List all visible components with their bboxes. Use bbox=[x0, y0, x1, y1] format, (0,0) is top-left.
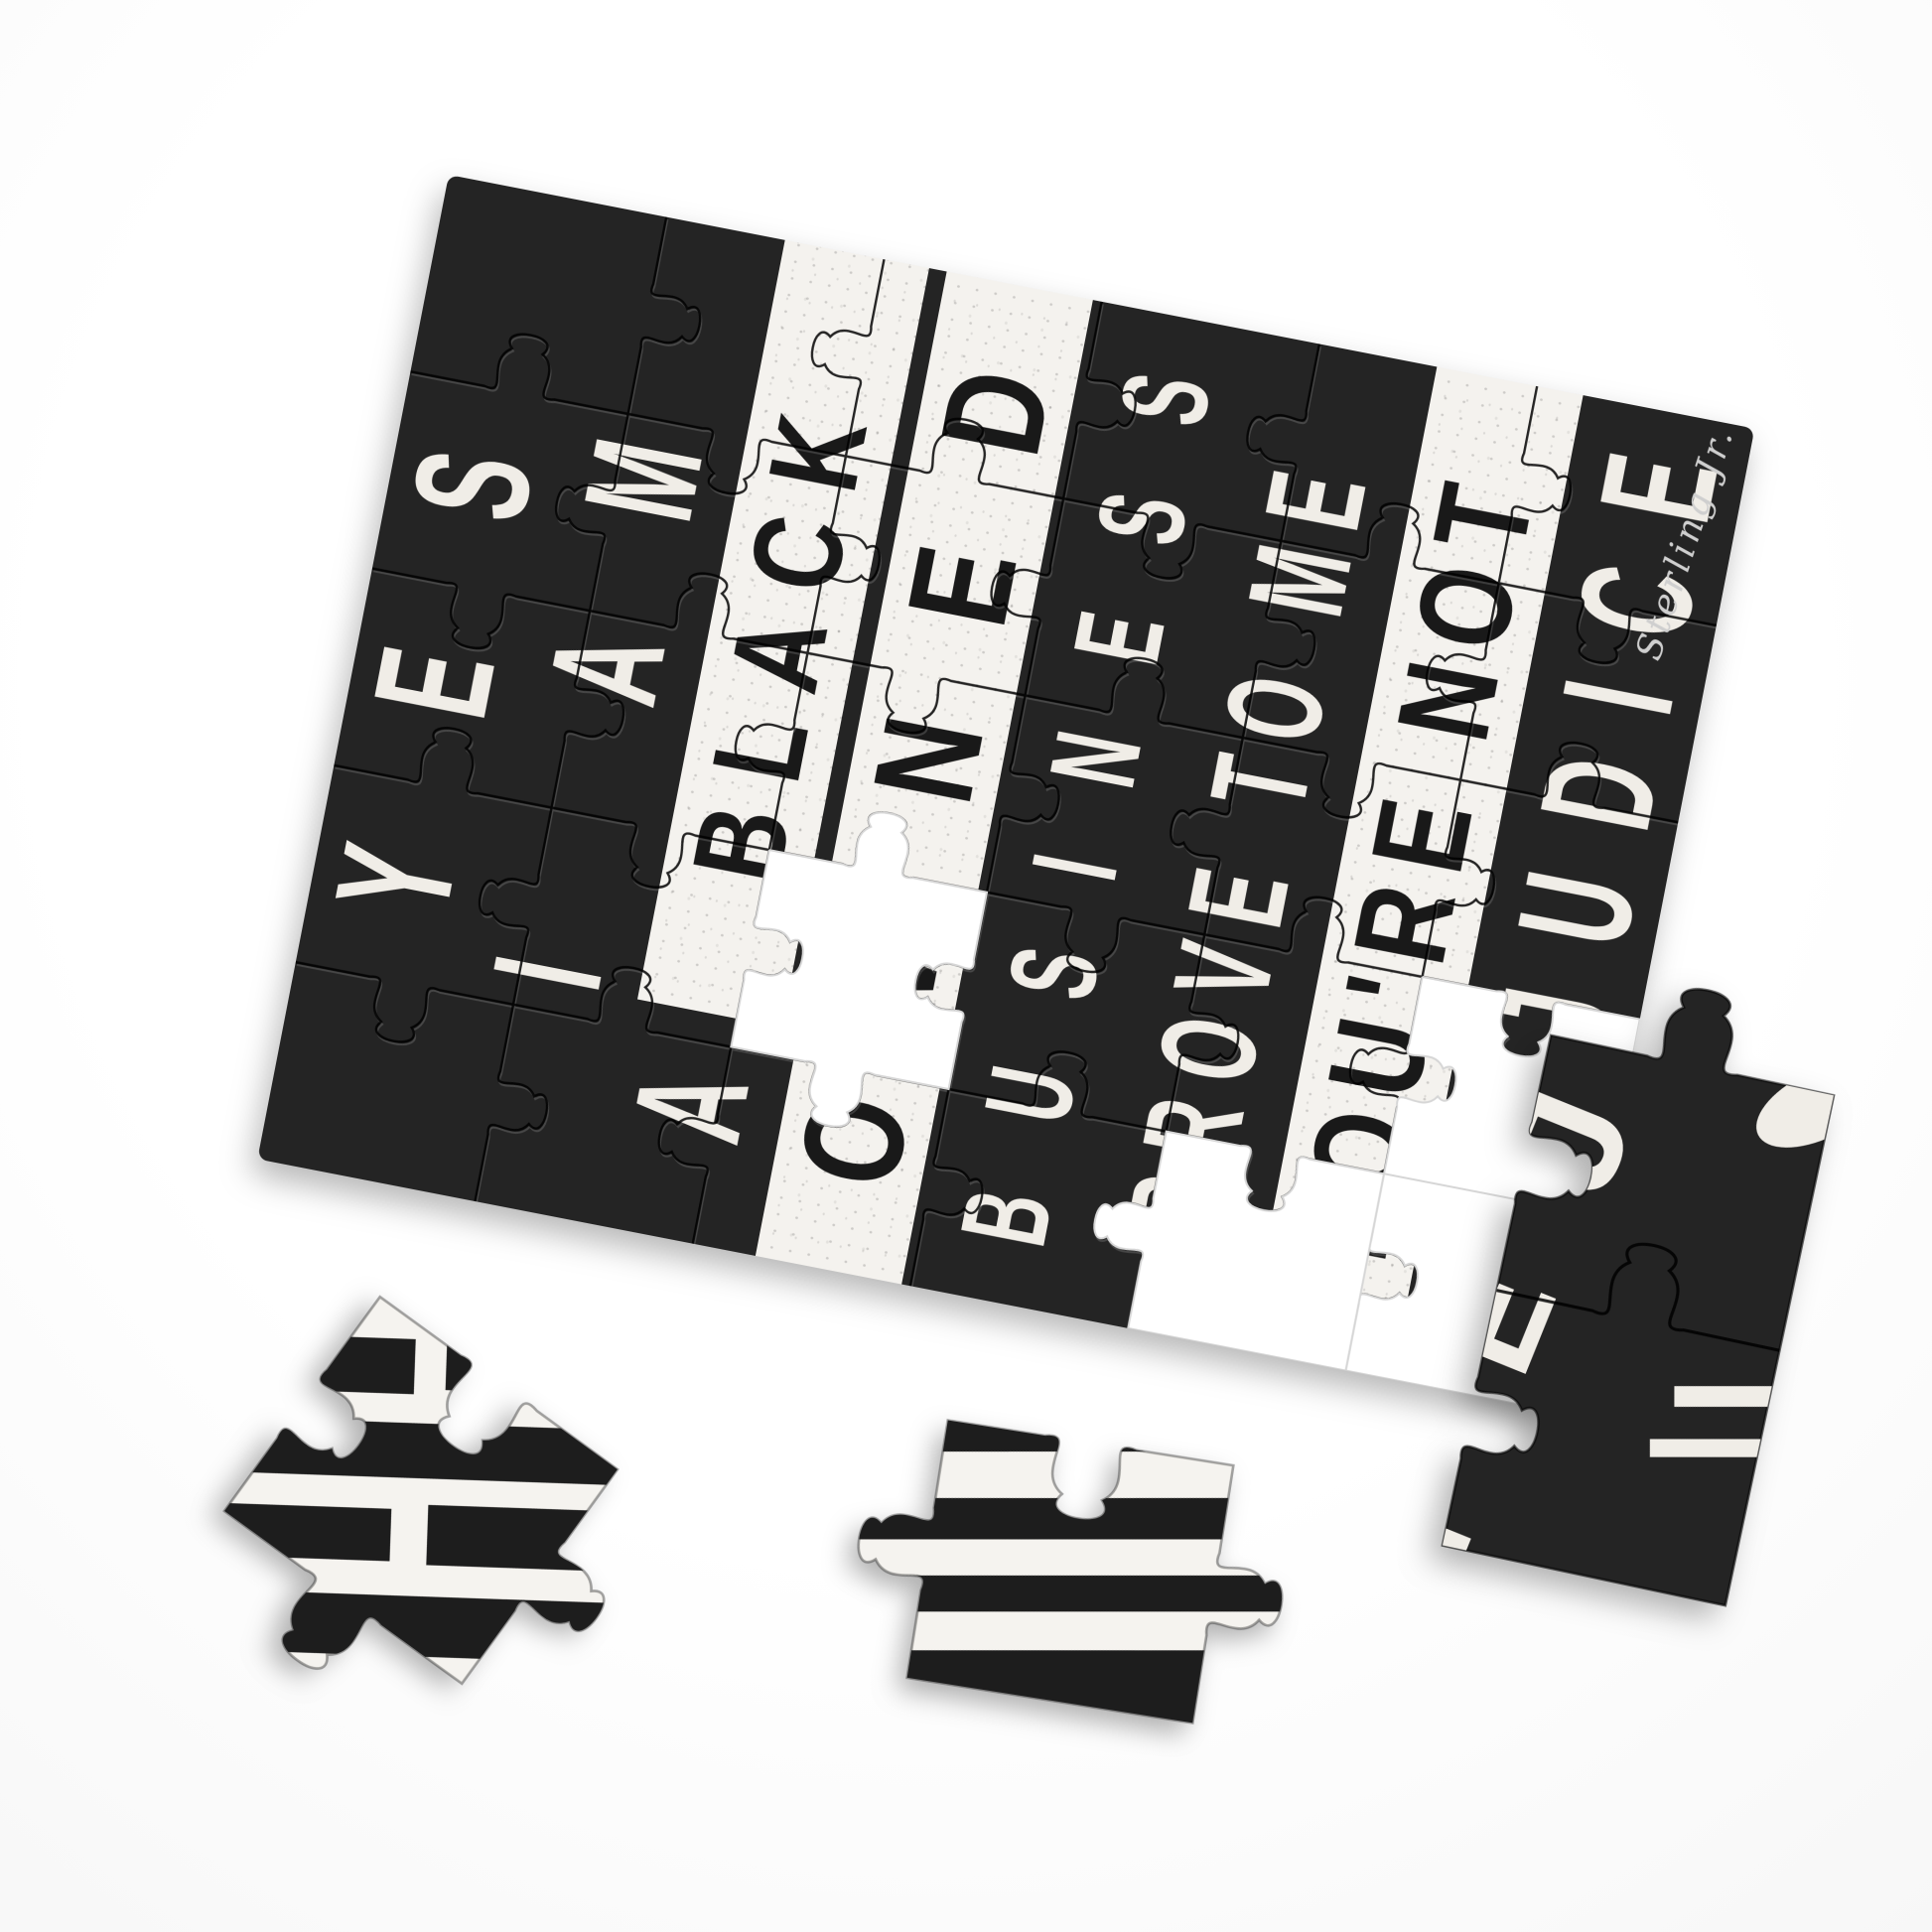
loose-puzzle-piece-middle bbox=[804, 1316, 1337, 1826]
product-photo: YES I AM A BLACK OWNED BUSINESS PROVE TO… bbox=[0, 0, 1932, 1932]
loose-puzzle-piece-left bbox=[96, 1169, 746, 1812]
letter-fragments bbox=[754, 1282, 1387, 1881]
